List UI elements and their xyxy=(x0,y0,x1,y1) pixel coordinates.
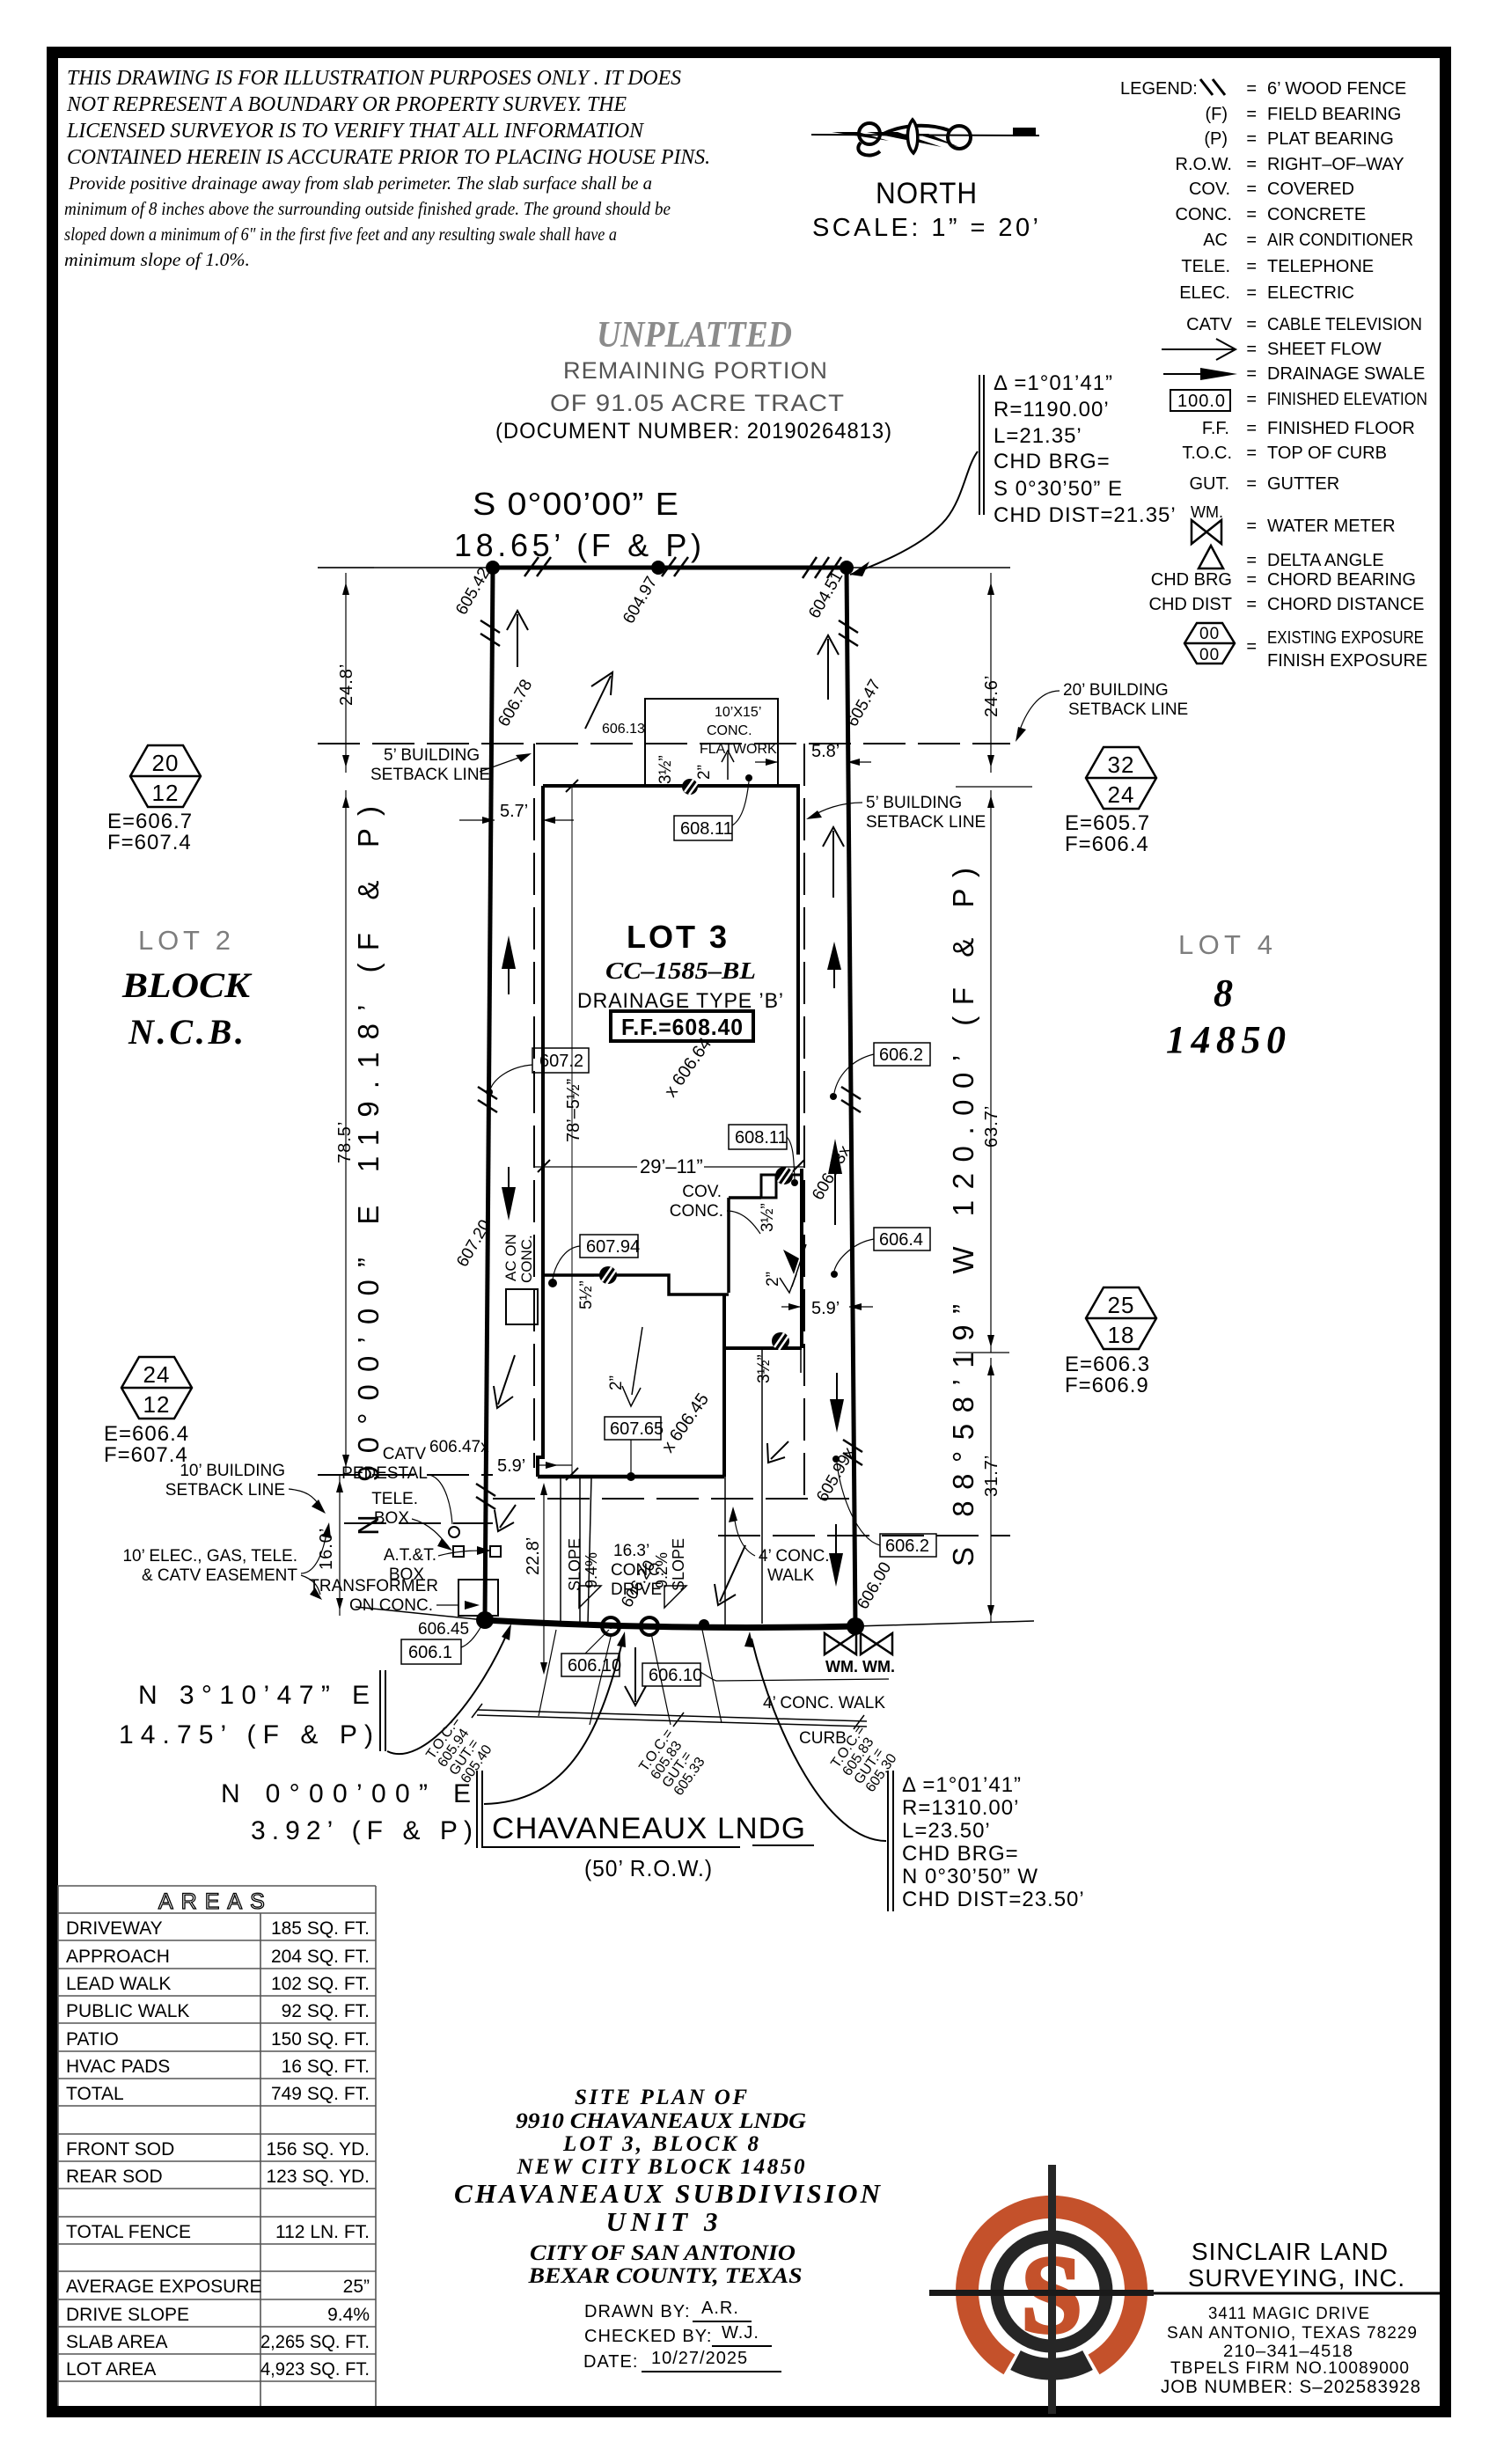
svg-text:9910 CHAVANEAUX LNDG: 9910 CHAVANEAUX LNDG xyxy=(516,2109,806,2133)
svg-text:00: 00 xyxy=(1199,625,1220,643)
svg-text:NORTH: NORTH xyxy=(876,177,978,210)
svg-text:92 SQ. FT.: 92 SQ. FT. xyxy=(282,2001,370,2021)
svg-text:=: = xyxy=(1246,419,1257,438)
svg-text:minimum of 8 inches above the: minimum of 8 inches above the surroundin… xyxy=(64,198,671,219)
svg-text:10/27/2025: 10/27/2025 xyxy=(651,2349,748,2368)
svg-text:DELTA ANGLE: DELTA ANGLE xyxy=(1267,551,1384,570)
svg-text:TOTAL FENCE: TOTAL FENCE xyxy=(66,2222,191,2242)
svg-text:100.0: 100.0 xyxy=(1177,392,1226,411)
svg-text:CONC.: CONC. xyxy=(707,723,752,738)
svg-text:HVAC PADS: HVAC PADS xyxy=(66,2057,170,2077)
svg-text:SETBACK LINE: SETBACK LINE xyxy=(165,1481,285,1500)
svg-text:S 88°58’19” W 120.00’ (F & P): S 88°58’19” W 120.00’ (F & P) xyxy=(947,867,979,1566)
svg-text:DATE:: DATE: xyxy=(583,2352,638,2372)
svg-text:REAR SOD: REAR SOD xyxy=(66,2167,163,2187)
svg-text:606.4: 606.4 xyxy=(879,1230,923,1250)
svg-text:14850: 14850 xyxy=(1166,1018,1286,1061)
svg-text:PUBLIC WALK: PUBLIC WALK xyxy=(66,2001,189,2021)
svg-text:607.2: 607.2 xyxy=(539,1052,583,1071)
svg-text:SLAB AREA: SLAB AREA xyxy=(66,2332,168,2352)
svg-text:UNPLATTED: UNPLATTED xyxy=(597,315,792,356)
svg-text:AC ON: AC ON xyxy=(502,1234,519,1281)
svg-text:ELECTRIC: ELECTRIC xyxy=(1267,283,1354,303)
svg-text:OF 91.05 ACRE TRACT: OF 91.05 ACRE TRACT xyxy=(550,390,845,416)
svg-text:=: = xyxy=(1246,257,1257,276)
svg-text:150 SQ. FT.: 150 SQ. FT. xyxy=(271,2029,370,2050)
svg-text:CHECKED BY:: CHECKED BY: xyxy=(584,2327,712,2346)
svg-text:112 LN. FT.: 112 LN. FT. xyxy=(275,2222,370,2242)
svg-text:FLATWORK: FLATWORK xyxy=(700,742,777,757)
svg-text:BEXAR COUNTY, TEXAS: BEXAR COUNTY, TEXAS xyxy=(527,2264,802,2288)
svg-text:EXISTING EXPOSURE: EXISTING EXPOSURE xyxy=(1267,628,1424,648)
svg-text:WATER METER: WATER METER xyxy=(1267,517,1396,536)
svg-text:WALK: WALK xyxy=(767,1566,814,1585)
svg-text:Δ =1°01’41”: Δ =1°01’41” xyxy=(994,371,1113,395)
svg-text:63.7’: 63.7’ xyxy=(982,1105,1001,1148)
svg-text:CHD DIST: CHD DIST xyxy=(1149,595,1232,614)
svg-text:SLOPE: SLOPE xyxy=(670,1538,687,1591)
svg-text:204 SQ. FT.: 204 SQ. FT. xyxy=(271,1947,370,1967)
svg-text:SHEET FLOW: SHEET FLOW xyxy=(1267,340,1382,359)
svg-text:CURB: CURB xyxy=(799,1729,847,1748)
svg-text:4’ CONC. WALK: 4’ CONC. WALK xyxy=(763,1694,885,1712)
svg-text:18: 18 xyxy=(1108,1322,1135,1348)
svg-text:A.T.&T.: A.T.&T. xyxy=(384,1546,436,1565)
svg-text:102 SQ. FT.: 102 SQ. FT. xyxy=(271,1974,370,1994)
svg-text:=: = xyxy=(1246,390,1257,409)
svg-text:COV.: COV. xyxy=(1189,180,1230,199)
svg-text:TELE.: TELE. xyxy=(371,1490,418,1508)
svg-text:PATIO: PATIO xyxy=(66,2029,119,2050)
svg-text:24.8’: 24.8’ xyxy=(337,664,356,706)
svg-text:CHD BRG=: CHD BRG= xyxy=(994,450,1111,473)
svg-text:31.7’: 31.7’ xyxy=(982,1455,1001,1497)
svg-text:ON CONC.: ON CONC. xyxy=(349,1596,433,1615)
svg-text:R.O.W.: R.O.W. xyxy=(1176,155,1232,174)
svg-text:CHD DIST=23.50’: CHD DIST=23.50’ xyxy=(902,1888,1085,1911)
svg-text:F=607.4: F=607.4 xyxy=(104,1443,188,1467)
svg-text:4’ CONC.: 4’ CONC. xyxy=(759,1547,830,1566)
svg-text:AVERAGE EXPOSURE: AVERAGE EXPOSURE xyxy=(66,2277,262,2297)
svg-text:=: = xyxy=(1246,283,1257,303)
svg-text:210–341–4518: 210–341–4518 xyxy=(1223,2343,1353,2361)
svg-text:=: = xyxy=(1246,570,1257,590)
svg-text:FINISHED FLOOR: FINISHED FLOOR xyxy=(1267,419,1415,438)
svg-text:SCALE: 1” = 20’: SCALE: 1” = 20’ xyxy=(812,214,1039,242)
svg-text:=: = xyxy=(1246,444,1257,463)
svg-text:APPROACH: APPROACH xyxy=(66,1947,170,1967)
svg-text:9.4%: 9.4% xyxy=(583,1552,600,1588)
svg-text:6’ WOOD FENCE: 6’ WOOD FENCE xyxy=(1267,79,1406,99)
svg-text:2,265 SQ. FT.: 2,265 SQ. FT. xyxy=(260,2332,370,2352)
svg-text:=: = xyxy=(1246,155,1257,174)
svg-text:CHD BRG: CHD BRG xyxy=(1151,570,1232,590)
svg-text:& CATV EASEMENT: & CATV EASEMENT xyxy=(142,1566,297,1585)
svg-text:DRIVE SLOPE: DRIVE SLOPE xyxy=(66,2305,189,2325)
svg-text:5.9’: 5.9’ xyxy=(811,1299,840,1318)
svg-text:LICENSED SURVEYOR IS TO VERIFY: LICENSED SURVEYOR IS TO VERIFY THAT ALL … xyxy=(66,120,645,143)
svg-text:SURVEYING, INC.: SURVEYING, INC. xyxy=(1188,2264,1405,2292)
svg-text:LOT 2: LOT 2 xyxy=(138,925,231,956)
svg-text:8: 8 xyxy=(1214,972,1233,1015)
svg-text:TBPELS FIRM NO.10089000: TBPELS FIRM NO.10089000 xyxy=(1170,2359,1410,2378)
svg-text:=: = xyxy=(1246,364,1257,384)
svg-text:16.3’: 16.3’ xyxy=(613,1542,649,1560)
svg-text:LEGEND:: LEGEND: xyxy=(1120,79,1198,99)
svg-text:SETBACK LINE: SETBACK LINE xyxy=(1068,700,1188,719)
svg-text:LEAD WALK: LEAD WALK xyxy=(66,1974,171,1994)
svg-text:TELE.: TELE. xyxy=(1181,257,1230,276)
svg-text:AIR CONDITIONER: AIR CONDITIONER xyxy=(1267,231,1413,250)
svg-text:T.O.C.: T.O.C. xyxy=(1182,444,1232,463)
svg-text:606.13: 606.13 xyxy=(602,722,645,737)
svg-text:S 0°30’50” E: S 0°30’50” E xyxy=(994,477,1123,501)
svg-text:FRONT SOD: FRONT SOD xyxy=(66,2139,174,2160)
svg-text:749 SQ. FT.: 749 SQ. FT. xyxy=(271,2084,370,2104)
svg-text:22.8’: 22.8’ xyxy=(524,1537,543,1575)
svg-text:78’–5½”: 78’–5½” xyxy=(564,1079,583,1142)
svg-text:2”: 2” xyxy=(764,1272,782,1287)
svg-text:F=606.4: F=606.4 xyxy=(1065,832,1149,856)
svg-text:606.10: 606.10 xyxy=(649,1666,702,1685)
svg-text:E=606.3: E=606.3 xyxy=(1065,1353,1150,1376)
svg-text:25”: 25” xyxy=(343,2277,370,2297)
svg-text:F=606.9: F=606.9 xyxy=(1065,1374,1149,1397)
svg-text:RIGHT–OF–WAY: RIGHT–OF–WAY xyxy=(1267,155,1404,174)
svg-text:=: = xyxy=(1246,129,1257,149)
svg-text:2”: 2” xyxy=(695,765,714,780)
svg-text:00: 00 xyxy=(1199,646,1220,664)
svg-text:GUT.: GUT. xyxy=(1189,474,1229,494)
svg-text:606.47x: 606.47x xyxy=(429,1438,489,1456)
svg-text:R=1190.00’: R=1190.00’ xyxy=(994,398,1110,422)
svg-text:REMAINING PORTION: REMAINING PORTION xyxy=(563,357,828,384)
svg-text:(DOCUMENT NUMBER: 20190264813: (DOCUMENT NUMBER: 20190264813) xyxy=(495,419,892,444)
svg-text:123 SQ. YD.: 123 SQ. YD. xyxy=(266,2167,370,2187)
svg-text:GUTTER: GUTTER xyxy=(1267,474,1339,494)
svg-text:=: = xyxy=(1246,105,1257,124)
svg-text:4,923 SQ. FT.: 4,923 SQ. FT. xyxy=(260,2359,370,2380)
svg-text:ELEC.: ELEC. xyxy=(1179,283,1230,303)
svg-text:=: = xyxy=(1246,79,1257,99)
svg-text:DRAINAGE SWALE: DRAINAGE SWALE xyxy=(1267,364,1425,384)
svg-text:THIS DRAWING IS FOR ILLUSTRATI: THIS DRAWING IS FOR ILLUSTRATION PURPOSE… xyxy=(67,67,681,90)
svg-text:S 0°00’00” E: S 0°00’00” E xyxy=(473,486,679,522)
svg-text:CATV: CATV xyxy=(1186,315,1233,334)
svg-text:CONCRETE: CONCRETE xyxy=(1267,205,1366,224)
svg-text:N 0°30’50” W: N 0°30’50” W xyxy=(902,1865,1038,1888)
svg-text:5.9’: 5.9’ xyxy=(497,1456,525,1476)
svg-text:N.C.B.: N.C.B. xyxy=(128,1012,244,1052)
svg-text:WM.: WM. xyxy=(862,1658,895,1676)
svg-text:FINISH EXPOSURE: FINISH EXPOSURE xyxy=(1267,651,1427,671)
svg-text:606.1: 606.1 xyxy=(408,1643,452,1662)
svg-text:5’ BUILDING: 5’ BUILDING xyxy=(866,794,962,812)
svg-text:LOT 4: LOT 4 xyxy=(1178,929,1273,960)
svg-text:TELEPHONE: TELEPHONE xyxy=(1267,257,1374,276)
svg-text:3½”: 3½” xyxy=(656,755,675,784)
svg-text:A.R.: A.R. xyxy=(701,2299,739,2318)
svg-text:SITE PLAN OF: SITE PLAN OF xyxy=(575,2086,747,2109)
svg-text:606.2: 606.2 xyxy=(885,1536,929,1556)
svg-text:F.F.=608.40: F.F.=608.40 xyxy=(621,1014,744,1040)
svg-text:L=21.35’: L=21.35’ xyxy=(994,424,1082,448)
svg-text:CC–1585–BL: CC–1585–BL xyxy=(605,957,756,984)
svg-text:CONC.: CONC. xyxy=(518,1235,535,1283)
svg-text:E=605.7: E=605.7 xyxy=(1065,811,1150,835)
svg-text:5½”: 5½” xyxy=(577,1280,596,1309)
svg-text:(P): (P) xyxy=(1204,129,1228,149)
svg-text:COV.: COV. xyxy=(682,1183,722,1201)
svg-text:25: 25 xyxy=(1108,1292,1135,1318)
svg-text:=: = xyxy=(1246,205,1257,224)
svg-text:=: = xyxy=(1246,595,1257,614)
svg-text:=: = xyxy=(1246,551,1257,570)
svg-text:607.65: 607.65 xyxy=(610,1419,664,1439)
svg-text:607.94: 607.94 xyxy=(586,1237,640,1257)
svg-text:AREAS: AREAS xyxy=(158,1889,273,1914)
svg-text:CHORD DISTANCE: CHORD DISTANCE xyxy=(1267,595,1425,614)
svg-text:18.65’ (F & P): 18.65’ (F & P) xyxy=(454,527,702,563)
svg-text:24: 24 xyxy=(1108,781,1135,808)
svg-text:608.11: 608.11 xyxy=(680,819,733,839)
svg-text:20’ BUILDING: 20’ BUILDING xyxy=(1063,681,1169,700)
svg-text:CHAVANEAUX LNDG: CHAVANEAUX LNDG xyxy=(492,1812,806,1845)
svg-text:(F): (F) xyxy=(1205,105,1228,124)
svg-text:CHAVANEAUX SUBDIVISION: CHAVANEAUX SUBDIVISION xyxy=(454,2178,882,2209)
svg-text:=: = xyxy=(1246,315,1257,334)
svg-text:TOP OF CURB: TOP OF CURB xyxy=(1267,444,1387,463)
svg-text:PEDESTAL: PEDESTAL xyxy=(341,1464,428,1483)
svg-text:3411 MAGIC DRIVE: 3411 MAGIC DRIVE xyxy=(1208,2305,1370,2323)
svg-text:=: = xyxy=(1246,637,1257,656)
svg-text:FINISHED ELEVATION: FINISHED ELEVATION xyxy=(1267,390,1427,409)
svg-text:9.4%: 9.4% xyxy=(327,2305,370,2325)
svg-text:12: 12 xyxy=(143,1391,171,1418)
svg-text:20: 20 xyxy=(152,750,180,776)
svg-text:78.5’: 78.5’ xyxy=(335,1121,355,1163)
svg-text:5.7’: 5.7’ xyxy=(500,802,528,821)
svg-text:CONTAINED HEREIN IS ACCURATE P: CONTAINED HEREIN IS ACCURATE PRIOR TO PL… xyxy=(67,146,710,169)
svg-text:NEW CITY BLOCK 14850: NEW CITY BLOCK 14850 xyxy=(517,2155,806,2179)
svg-text:=: = xyxy=(1246,517,1257,536)
svg-text:608.11: 608.11 xyxy=(735,1128,788,1148)
svg-text:LOT 3: LOT 3 xyxy=(627,919,728,955)
svg-text:5’ BUILDING: 5’ BUILDING xyxy=(384,746,480,765)
svg-text:W.J.: W.J. xyxy=(722,2323,759,2343)
svg-text:CONC.: CONC. xyxy=(670,1202,723,1221)
svg-text:minimum slope of 1.0%.: minimum slope of 1.0%. xyxy=(64,249,250,270)
svg-text:FIELD BEARING: FIELD BEARING xyxy=(1267,105,1401,124)
svg-text:=: = xyxy=(1246,474,1257,494)
svg-text:WM.: WM. xyxy=(825,1658,858,1676)
svg-text:606.45: 606.45 xyxy=(418,1620,469,1639)
svg-text:16 SQ. FT.: 16 SQ. FT. xyxy=(282,2057,370,2077)
svg-text:185 SQ. FT.: 185 SQ. FT. xyxy=(271,1918,370,1939)
svg-text:TRANSFORMER: TRANSFORMER xyxy=(309,1577,438,1595)
svg-text:606.2: 606.2 xyxy=(879,1045,923,1065)
svg-text:SLOPE: SLOPE xyxy=(566,1538,583,1591)
svg-text:SAN ANTONIO, TEXAS 78229: SAN ANTONIO, TEXAS 78229 xyxy=(1167,2324,1418,2343)
svg-text:(50’ R.O.W.): (50’ R.O.W.) xyxy=(584,1855,713,1881)
svg-text:DRIVEWAY: DRIVEWAY xyxy=(66,1918,163,1939)
svg-text:COVERED: COVERED xyxy=(1267,180,1354,199)
svg-text:5.8’: 5.8’ xyxy=(811,742,840,761)
svg-text:SINCLAIR LAND: SINCLAIR LAND xyxy=(1192,2238,1389,2265)
svg-text:TOTAL: TOTAL xyxy=(66,2084,124,2104)
svg-text:12: 12 xyxy=(152,780,180,806)
svg-text:=: = xyxy=(1246,231,1257,250)
svg-text:CATV: CATV xyxy=(383,1445,427,1463)
svg-text:LOT AREA: LOT AREA xyxy=(66,2359,156,2380)
svg-text:SETBACK LINE: SETBACK LINE xyxy=(866,813,986,832)
svg-text:Provide positive drainage away: Provide positive drainage away from slab… xyxy=(68,172,652,194)
svg-text:Δ =1°01’41”: Δ =1°01’41” xyxy=(902,1773,1022,1797)
svg-text:JOB NUMBER: S–202583928: JOB NUMBER: S–202583928 xyxy=(1161,2377,1421,2397)
svg-text:10’ ELEC., GAS, TELE.: 10’ ELEC., GAS, TELE. xyxy=(122,1547,297,1566)
svg-text:3½”: 3½” xyxy=(759,1203,777,1232)
svg-text:10’X15’: 10’X15’ xyxy=(715,705,761,720)
svg-text:sloped down a minimum of 6" in: sloped down a minimum of 6" in the first… xyxy=(64,224,617,245)
svg-text:F.F.: F.F. xyxy=(1202,419,1229,438)
svg-text:156 SQ. YD.: 156 SQ. YD. xyxy=(266,2139,370,2160)
svg-text:CHD DIST=21.35’: CHD DIST=21.35’ xyxy=(994,503,1177,527)
svg-text:29’–11”: 29’–11” xyxy=(640,1155,703,1177)
svg-text:L=23.50’: L=23.50’ xyxy=(902,1819,991,1843)
svg-text:=: = xyxy=(1246,340,1257,359)
svg-text:32: 32 xyxy=(1108,752,1135,778)
svg-text:CHORD BEARING: CHORD BEARING xyxy=(1267,570,1416,590)
svg-text:=: = xyxy=(1246,180,1257,199)
svg-text:DRAINAGE TYPE ’B’: DRAINAGE TYPE ’B’ xyxy=(577,989,784,1013)
svg-text:E=606.4: E=606.4 xyxy=(104,1422,189,1446)
svg-text:AC: AC xyxy=(1203,231,1228,250)
svg-text:NOT REPRESENT A BOUNDARY OR PR: NOT REPRESENT A BOUNDARY OR PROPERTY SUR… xyxy=(66,93,627,116)
svg-text:LOT 3, BLOCK 8: LOT 3, BLOCK 8 xyxy=(562,2132,759,2156)
svg-text:10’ BUILDING: 10’ BUILDING xyxy=(180,1462,285,1480)
svg-text:F=607.4: F=607.4 xyxy=(107,831,192,854)
svg-text:E=606.7: E=606.7 xyxy=(107,810,193,833)
svg-text:24: 24 xyxy=(143,1361,171,1388)
svg-text:3½”: 3½” xyxy=(755,1354,774,1383)
svg-text:SETBACK LINE: SETBACK LINE xyxy=(370,766,490,784)
svg-text:DRAWN BY:: DRAWN BY: xyxy=(584,2302,691,2321)
svg-text:CITY OF SAN ANTONIO: CITY OF SAN ANTONIO xyxy=(530,2241,796,2265)
svg-text:WM.: WM. xyxy=(1191,503,1223,521)
svg-text:BLOCK: BLOCK xyxy=(121,965,253,1005)
svg-text:24.6’: 24.6’ xyxy=(982,675,1001,717)
svg-text:CABLE TELEVISION: CABLE TELEVISION xyxy=(1267,315,1422,334)
svg-text:CHD BRG=: CHD BRG= xyxy=(902,1842,1019,1866)
svg-text:CONC.: CONC. xyxy=(1176,205,1232,224)
svg-text:PLAT BEARING: PLAT BEARING xyxy=(1267,129,1394,149)
svg-text:BOX: BOX xyxy=(374,1509,409,1528)
svg-text:R=1310.00’: R=1310.00’ xyxy=(902,1796,1019,1820)
